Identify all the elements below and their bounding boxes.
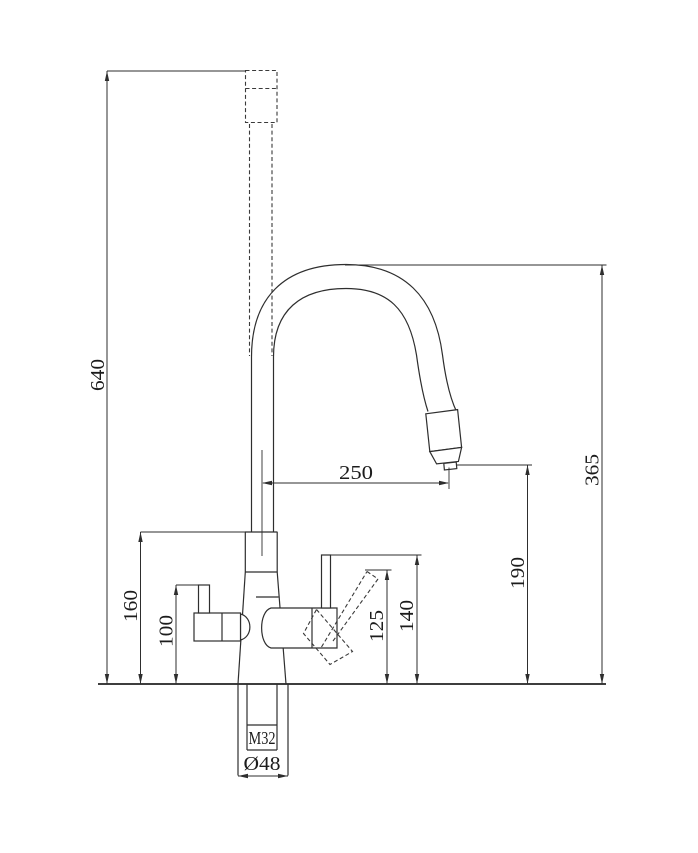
spray-head <box>426 410 462 452</box>
left-handle-stem <box>199 585 210 613</box>
phantom-pullout-spray <box>246 71 278 357</box>
nozzle-tip <box>444 462 457 470</box>
dim-label-190: 190 <box>507 557 529 589</box>
dim-label-365: 365 <box>582 454 604 486</box>
dim-label-140: 140 <box>396 600 418 632</box>
base-diameter-label: Ø48 <box>244 753 281 775</box>
dim-label-125: 125 <box>366 610 388 642</box>
faucet-outline <box>194 265 462 776</box>
dim-label-160: 160 <box>120 590 142 622</box>
dimension-labels: 640 365 190 250 160 100 125 140 M32 Ø48 <box>87 359 604 775</box>
technical-drawing-page: 640 365 190 250 160 100 125 140 M32 Ø48 <box>0 0 698 853</box>
left-handle-neck <box>241 614 250 640</box>
faucet-dimension-drawing: 640 365 190 250 160 100 125 140 M32 Ø48 <box>0 0 698 853</box>
dim-label-250: 250 <box>339 462 373 484</box>
thread-size-label: M32 <box>249 728 276 748</box>
dimension-annotations <box>105 71 607 778</box>
mixer-housing <box>262 608 337 648</box>
dim-label-640: 640 <box>87 359 109 391</box>
dim-label-100: 100 <box>156 615 178 647</box>
left-handle-body <box>194 613 241 641</box>
lever-upright <box>322 555 331 608</box>
